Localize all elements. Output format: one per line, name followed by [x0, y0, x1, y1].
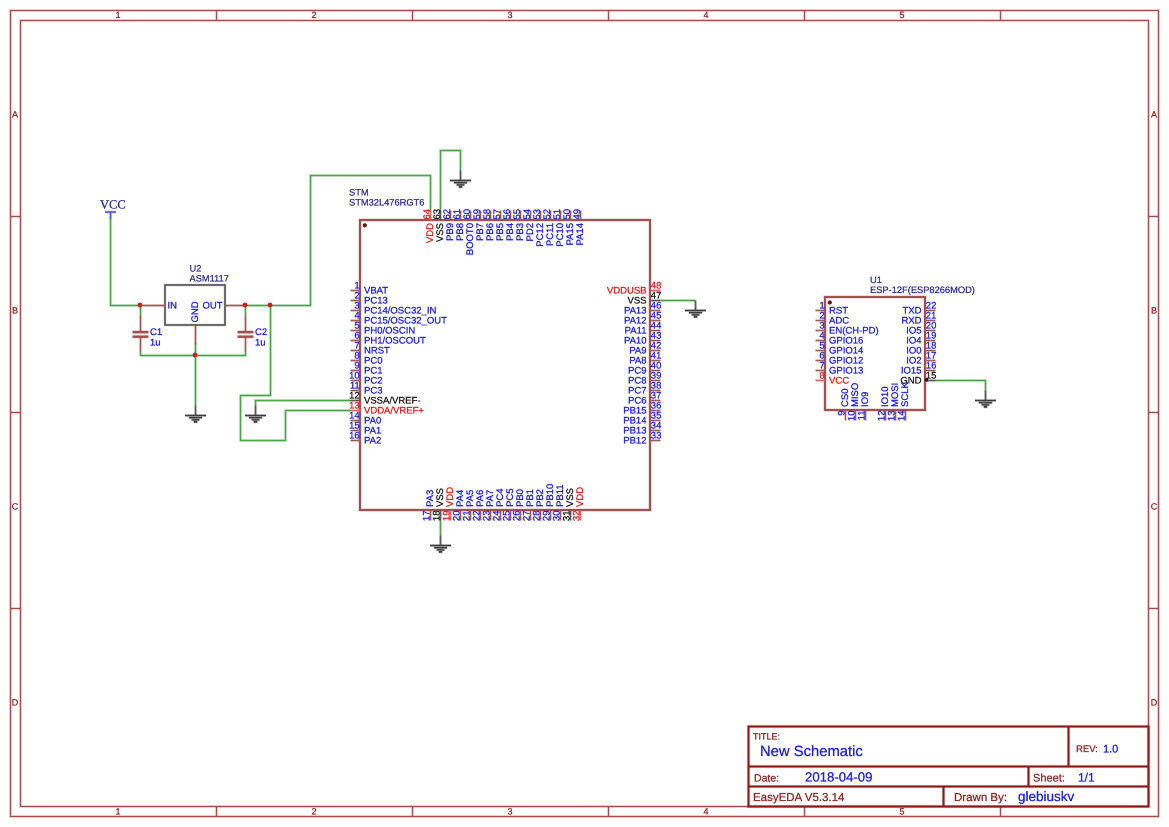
svg-text:5: 5: [899, 10, 904, 20]
svg-text:D: D: [12, 698, 19, 708]
svg-text:PA14: PA14: [575, 223, 586, 246]
svg-text:A: A: [1151, 110, 1157, 120]
svg-text:2: 2: [311, 806, 316, 816]
svg-text:1: 1: [115, 806, 120, 816]
svg-text:11: 11: [857, 411, 868, 421]
svg-text:Sheet:: Sheet:: [1033, 773, 1065, 785]
svg-text:4: 4: [703, 806, 708, 816]
svg-text:PB12: PB12: [623, 436, 646, 447]
svg-text:33: 33: [651, 431, 662, 442]
svg-text:TITLE:: TITLE:: [753, 732, 780, 742]
svg-text:3: 3: [507, 806, 512, 816]
svg-text:32: 32: [572, 511, 583, 522]
svg-text:STM: STM: [349, 188, 369, 198]
svg-text:VDD: VDD: [575, 487, 586, 507]
svg-text:GND: GND: [190, 301, 201, 322]
svg-text:1/1: 1/1: [1078, 771, 1095, 785]
svg-text:16: 16: [349, 431, 360, 442]
svg-text:ASM1117: ASM1117: [190, 274, 229, 284]
svg-text:3: 3: [507, 10, 512, 20]
svg-text:EasyEDA V5.3.14: EasyEDA V5.3.14: [753, 792, 845, 804]
svg-text:1u: 1u: [255, 338, 266, 349]
svg-text:New Schematic: New Schematic: [760, 744, 863, 760]
svg-text:1: 1: [115, 10, 120, 20]
svg-text:1.0: 1.0: [1103, 744, 1118, 756]
svg-text:glebiuskv: glebiuskv: [1018, 789, 1075, 804]
svg-text:14: 14: [897, 411, 908, 422]
svg-text:OUT: OUT: [202, 300, 222, 311]
svg-text:VCC: VCC: [100, 198, 126, 212]
svg-text:Date:: Date:: [754, 773, 779, 785]
svg-text:C: C: [1151, 502, 1158, 512]
svg-text:B: B: [12, 306, 18, 316]
svg-text:IO9: IO9: [860, 392, 871, 407]
svg-text:2018-04-09: 2018-04-09: [805, 770, 872, 785]
svg-text:U2: U2: [190, 264, 202, 274]
svg-text:Drawn By:: Drawn By:: [954, 792, 1007, 804]
svg-text:REV:: REV:: [1076, 744, 1098, 755]
svg-text:1u: 1u: [150, 338, 161, 349]
svg-text:8: 8: [819, 371, 824, 382]
svg-text:VCC: VCC: [829, 376, 849, 387]
svg-text:U1: U1: [870, 275, 882, 285]
svg-text:C2: C2: [255, 327, 267, 338]
svg-text:SCLK: SCLK: [900, 382, 911, 407]
svg-text:B: B: [1151, 306, 1157, 316]
svg-text:D: D: [1151, 698, 1158, 708]
svg-text:STM32L476RGT6: STM32L476RGT6: [349, 198, 424, 208]
svg-text:4: 4: [703, 10, 708, 20]
svg-text:PA2: PA2: [364, 436, 381, 447]
svg-text:IN: IN: [168, 300, 178, 311]
svg-text:C: C: [12, 502, 19, 512]
svg-text:A: A: [12, 110, 18, 120]
svg-text:49: 49: [572, 209, 583, 220]
svg-text:2: 2: [311, 10, 316, 20]
svg-text:C1: C1: [150, 327, 162, 338]
svg-text:ESP-12F(ESP8266MOD): ESP-12F(ESP8266MOD): [870, 285, 975, 295]
